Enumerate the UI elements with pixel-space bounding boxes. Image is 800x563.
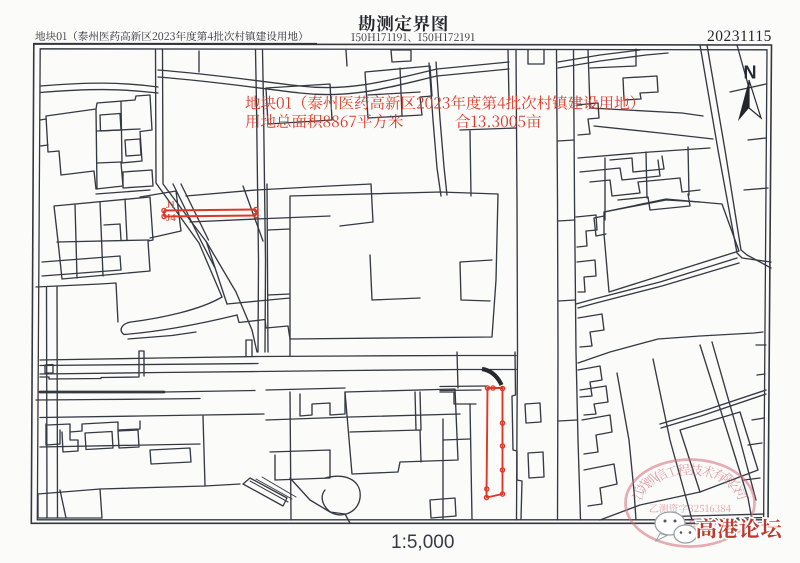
svg-text:J4: J4 [166,212,176,224]
svg-text:1:5,000: 1:5,000 [391,532,454,553]
svg-text:N: N [744,63,757,83]
svg-text:20231115: 20231115 [707,28,772,45]
svg-text:J1: J1 [166,199,176,211]
